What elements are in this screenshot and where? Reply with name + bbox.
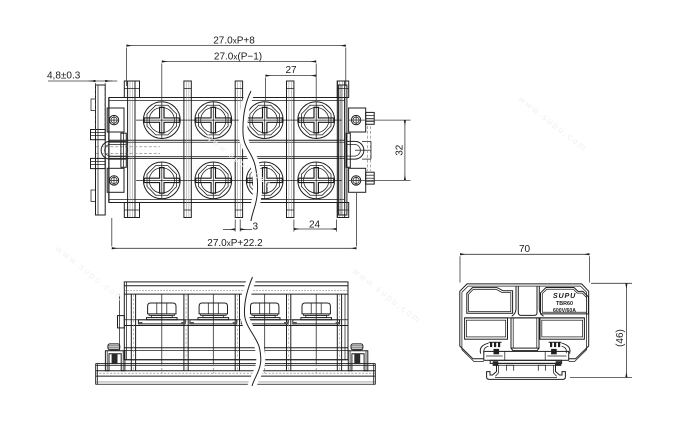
svg-text:4,8±0.3: 4,8±0.3 bbox=[47, 71, 81, 82]
svg-text:24: 24 bbox=[309, 219, 321, 230]
svg-text:SUPU: SUPU bbox=[553, 291, 576, 300]
svg-text:32: 32 bbox=[395, 144, 406, 156]
svg-text:3: 3 bbox=[253, 221, 259, 232]
svg-text:27.0xP+8: 27.0xP+8 bbox=[213, 36, 255, 47]
svg-text:70: 70 bbox=[519, 244, 531, 255]
svg-text:TBR60: TBR60 bbox=[556, 301, 573, 307]
svg-text:(46): (46) bbox=[615, 329, 626, 347]
svg-text:600V/60A: 600V/60A bbox=[553, 308, 576, 314]
svg-text:27.0xP+22.2: 27.0xP+22.2 bbox=[207, 238, 263, 249]
svg-text:27: 27 bbox=[285, 65, 297, 76]
svg-text:27.0x(P−1): 27.0x(P−1) bbox=[214, 51, 262, 62]
